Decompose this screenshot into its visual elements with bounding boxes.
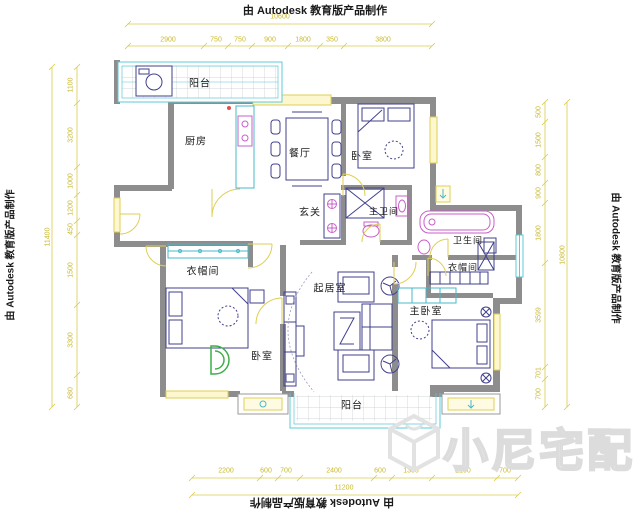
dim-top-seg-5: 1800	[295, 37, 311, 44]
dim-top-seg-1: 2900	[160, 37, 176, 44]
dim-top-seg-3: 750	[234, 37, 246, 44]
room-label-living: 起居室	[314, 280, 347, 295]
dim-right-seg-6: 3599	[536, 307, 543, 323]
dim-left-seg-2: 3200	[68, 127, 75, 143]
dim-left-seg-1: 1100	[68, 77, 75, 92]
room-label-cloakroom-left: 衣帽间	[187, 263, 220, 278]
brand-cube-icon	[386, 413, 442, 473]
dim-bottom-seg-5: 600	[374, 468, 386, 475]
dim-left-seg-4: 1200	[68, 200, 75, 216]
dim-right-seg-3: 800	[536, 164, 543, 176]
foyer-cabinet	[324, 194, 340, 238]
autodesk-stamp-bottom: 由 Autodesk 教育版产品制作	[250, 495, 394, 511]
dim-bottom-seg-4: 2400	[326, 468, 342, 475]
room-label-dining: 餐厅	[289, 145, 311, 160]
dim-top-seg-4: 900	[264, 37, 276, 44]
dim-left-seg-3: 1000	[68, 173, 75, 189]
washing-machine	[136, 66, 172, 96]
room-label-kitchen: 厨房	[185, 133, 207, 148]
room-label-bedroom-left: 卧室	[251, 348, 273, 363]
room-label-bedroom-top: 卧室	[351, 148, 373, 163]
dim-right-seg-5: 1800	[536, 225, 543, 241]
dim-bottom-total: 11200	[335, 485, 354, 492]
cloakroom-left-closet	[168, 244, 248, 258]
room-label-master-bath: 主卫间	[369, 205, 399, 218]
room-label-balcony-bottom: 阳台	[341, 397, 363, 412]
room-label-foyer: 玄关	[299, 204, 321, 219]
dim-left-seg-5: 450	[68, 223, 75, 235]
dim-left-total: 11400	[45, 228, 52, 247]
dim-left-seg-8: 680	[68, 387, 75, 399]
dim-right-seg-7: 701	[536, 367, 543, 379]
dim-bottom-seg-2: 600	[260, 468, 272, 475]
dim-right-seg-4: 900	[536, 187, 543, 199]
autodesk-stamp-top: 由 Autodesk 教育版产品制作	[243, 2, 387, 18]
dim-right-seg-2: 1500	[536, 132, 543, 148]
dim-bottom-seg-1: 2200	[218, 468, 234, 475]
dim-bottom-seg-3: 700	[280, 468, 292, 475]
dim-right-seg-1: 500	[536, 106, 543, 118]
dim-left-seg-6: 1500	[68, 262, 75, 278]
dim-top-seg-6: 350	[326, 37, 338, 44]
dim-top-seg-7: 3800	[375, 37, 391, 44]
dim-right-total: 10800	[560, 245, 567, 264]
room-label-cloakroom-right: 衣帽间	[448, 261, 478, 274]
room-label-bathroom: 卫生间	[453, 234, 483, 247]
room-label-master-bedroom: 主卧室	[410, 303, 443, 318]
dim-top-seg-2: 750	[210, 37, 222, 44]
dim-left-seg-7: 3300	[68, 332, 75, 348]
dim-right-seg-8: 700	[536, 388, 543, 400]
window-teal-right	[516, 235, 523, 277]
bed-bottom-left	[166, 288, 264, 348]
brand-watermark: 小尼宅配	[443, 414, 635, 479]
kitchen-counter	[227, 106, 254, 188]
planter-left	[238, 394, 288, 414]
walls	[114, 60, 522, 397]
green-chair	[211, 346, 229, 374]
planter-right	[442, 394, 500, 414]
autodesk-stamp-right: 由 Autodesk 教育版产品制作	[610, 192, 625, 323]
room-label-balcony-top: 阳台	[189, 75, 211, 90]
autodesk-stamp-left: 由 Autodesk 教育版产品制作	[2, 189, 17, 320]
